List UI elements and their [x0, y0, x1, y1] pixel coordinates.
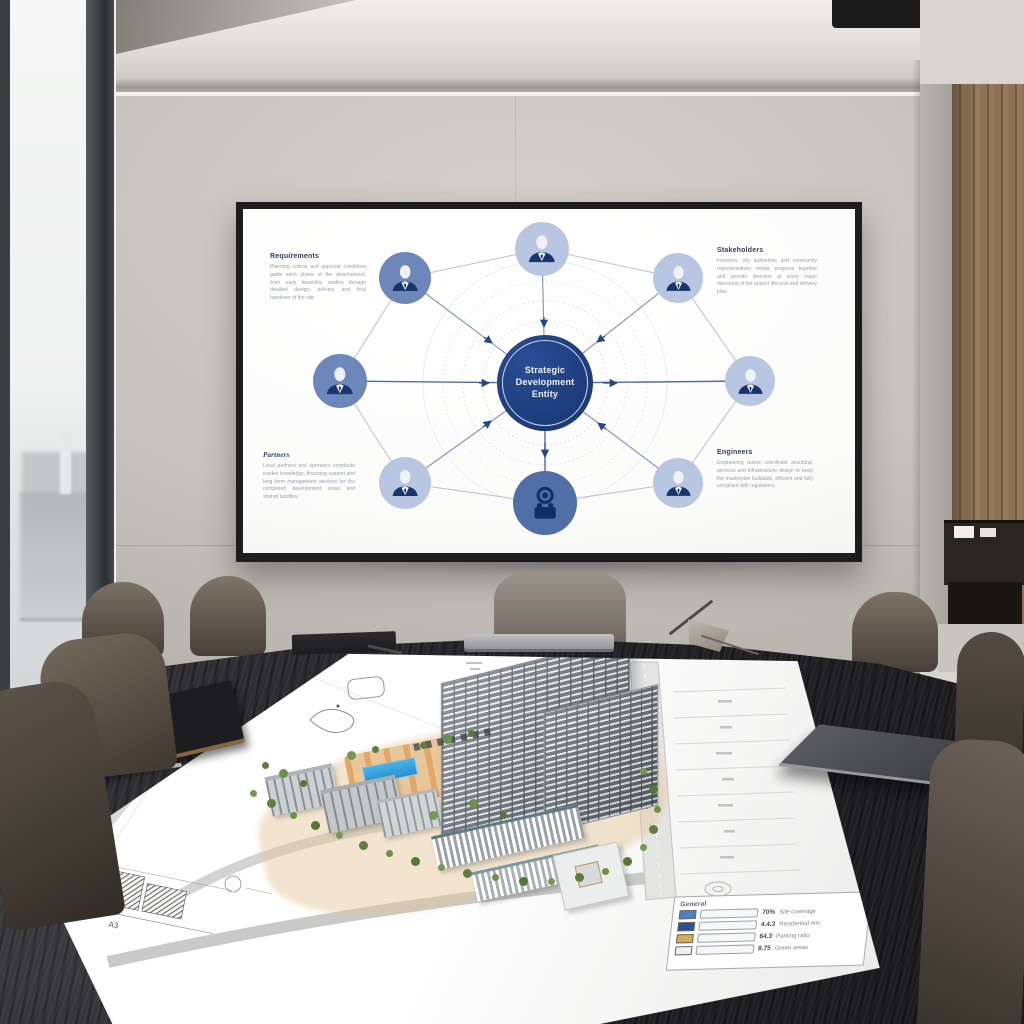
person-icon: [662, 467, 695, 500]
credenza-object: [980, 528, 996, 537]
legend-value: 8.75: [758, 945, 771, 952]
diagram-node-person: [653, 253, 703, 303]
legend-bar: [698, 920, 757, 931]
legend-label: Residential mix: [779, 920, 820, 927]
person-icon: [388, 261, 422, 295]
callout-heading: Partners: [263, 451, 355, 459]
callout-body: Engineering teams coordinate structural,…: [717, 460, 813, 491]
person-icon: [322, 363, 358, 399]
legend-bar: [696, 944, 755, 955]
credenza-object: [954, 526, 974, 538]
chair: [916, 737, 1024, 1024]
legend-bar: [697, 932, 756, 943]
callout-top-right: Stakeholders Investors, city authorities…: [717, 247, 817, 297]
legend-swatch: [679, 910, 697, 919]
legend-label: Parking ratio: [776, 932, 810, 939]
credenza-base: [948, 582, 1022, 624]
legend-swatch: [677, 922, 695, 931]
city-skyline: [20, 492, 96, 622]
legend-value: 70%: [762, 909, 776, 916]
person-icon: [662, 262, 695, 295]
legend-swatch: [675, 946, 693, 955]
wall-panel-joint: [515, 96, 516, 206]
callout-bottom-left: Partners Local partners and operators co…: [263, 451, 355, 502]
diagram-node-equipment: [513, 471, 577, 535]
person-icon: [734, 365, 767, 398]
person-icon: [388, 466, 422, 500]
legend-value: 64.3: [759, 933, 772, 940]
diagram-node-person: [653, 458, 703, 508]
callout-body: Investors, city authorities and communit…: [717, 258, 817, 297]
diagram-center-node: Strategic Development Entity: [497, 335, 593, 431]
callout-top-left: Requirements Planning criteria and appro…: [270, 253, 366, 303]
window-glass: [10, 0, 86, 700]
diagram-node-person: [725, 356, 775, 406]
chair: [190, 576, 266, 656]
person-icon: [524, 231, 560, 267]
city-tower: [60, 430, 71, 494]
notebook: [292, 631, 397, 655]
callout-heading: Requirements: [270, 253, 366, 260]
sheet-label: A3: [108, 920, 120, 931]
diagram-node-person: [313, 354, 367, 408]
legend-value: 4.4.3: [760, 921, 775, 928]
callout-body: Planning criteria and approval condition…: [270, 264, 366, 303]
laptop-closed: [464, 634, 614, 652]
diagram-node-person: [379, 252, 431, 304]
callout-body: Local partners and operators contribute …: [263, 463, 355, 502]
equipment-icon: [524, 482, 566, 524]
screen-surface: Strategic Development Entity Requirement…: [243, 209, 855, 553]
meeting-room-scene: Strategic Development Entity Requirement…: [0, 0, 1024, 1024]
legend-swatch: [676, 934, 694, 943]
presentation-screen: Strategic Development Entity Requirement…: [236, 202, 862, 562]
ceiling-light-slot: [832, 0, 928, 28]
callout-heading: Engineers: [717, 449, 813, 456]
legend-bar: [700, 908, 759, 919]
callout-bottom-right: Engineers Engineering teams coordinate s…: [717, 449, 813, 491]
legend-row: 8.75 Green areas: [675, 942, 860, 956]
callout-heading: Stakeholders: [717, 247, 817, 254]
window-frame: [0, 0, 10, 700]
diagram-node-person: [379, 457, 431, 509]
diagram-node-person: [515, 222, 569, 276]
center-label: Strategic Development Entity: [516, 365, 575, 400]
chair: [852, 592, 938, 672]
legend-label: Site coverage: [779, 908, 816, 915]
legend-label: Green areas: [774, 944, 808, 951]
plan-legend: General 70% Site coverage 4.4.3 Resident…: [666, 891, 872, 970]
